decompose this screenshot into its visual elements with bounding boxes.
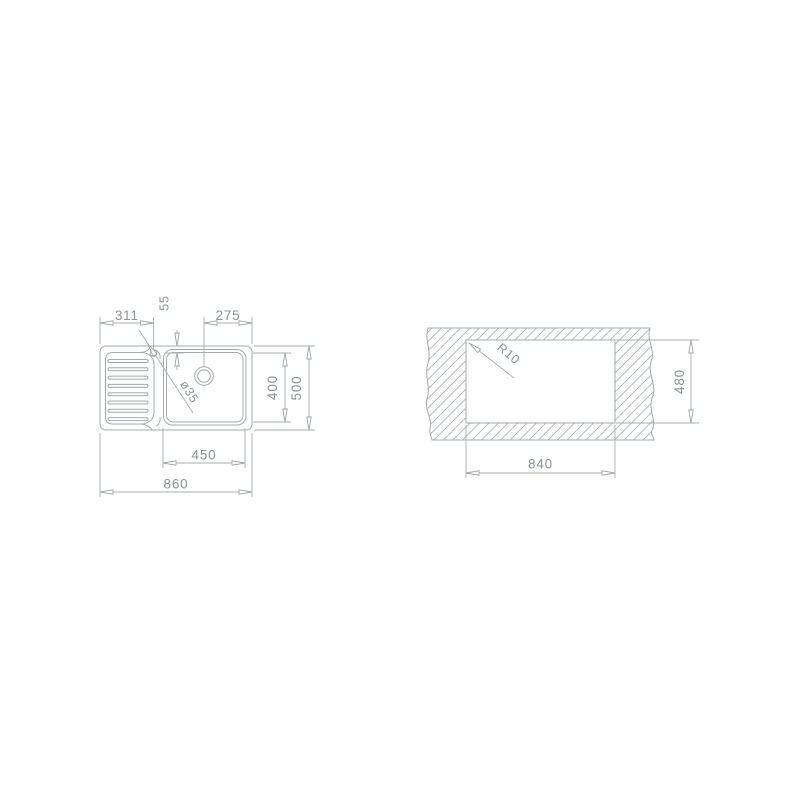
drainer-groove [108, 418, 148, 421]
dim-tap-hole-top-offset-label: 55 [158, 295, 172, 311]
drainer-groove [108, 376, 148, 379]
drainer-groove [108, 409, 148, 412]
dim-tap-hole-top-offset: 55 [158, 295, 185, 370]
dim-bowl-width-label: 450 [192, 448, 217, 463]
dim-bowl-depth: 400 [253, 353, 291, 422]
technical-drawing-page: 311 275 55 ø35 [0, 0, 800, 800]
drainer-groove [108, 401, 148, 404]
dim-bowl-width: 450 [163, 428, 245, 468]
worktop-cutout-view: R10 480 840 [426, 328, 699, 478]
waste-hole [195, 367, 214, 386]
tap-hole-diameter-label: ø35 [177, 378, 202, 406]
dim-overall-width-label: 860 [164, 477, 189, 492]
drainer-groove [108, 393, 148, 396]
dim-drainer-width-label: 311 [115, 308, 139, 323]
dim-tap-hole-from-right-label: 275 [216, 308, 241, 323]
sink-specification-drawing: 311 275 55 ø35 [0, 0, 800, 800]
dim-cutout-height-label: 480 [672, 369, 687, 394]
dim-tap-hole-from-right: 275 [204, 308, 252, 325]
drainer-groove [108, 384, 148, 387]
dim-cutout-width-label: 840 [528, 457, 553, 472]
cutout-corner-radius-callout: R10 [469, 340, 523, 378]
drainer-groove [108, 368, 148, 371]
tap-hole-callout: ø35 [139, 330, 202, 413]
dim-bowl-depth-label: 400 [265, 375, 280, 400]
waste-hole-inner [198, 370, 211, 383]
drainer-grooves [108, 360, 148, 421]
drainer-groove [108, 360, 148, 363]
dim-drainer-width: 311 [100, 308, 154, 325]
cutout-corner-radius-label: R10 [494, 340, 522, 367]
drainboard-outline [106, 353, 155, 425]
dim-overall-depth-label: 500 [289, 376, 304, 401]
sink-top-view: 311 275 55 ø35 [100, 295, 315, 497]
